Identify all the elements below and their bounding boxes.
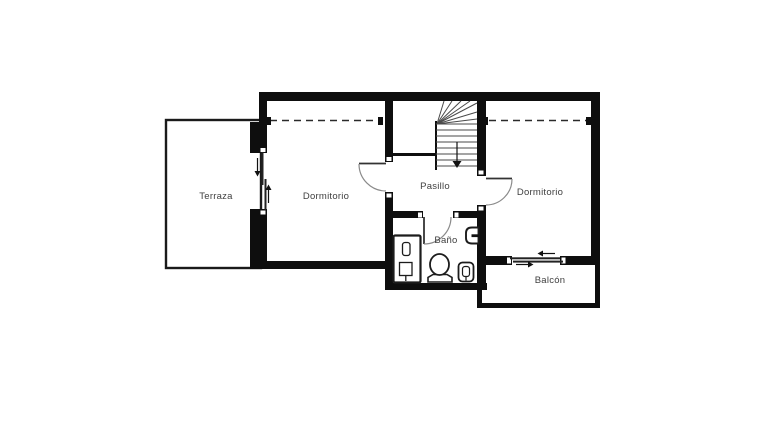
wall-balcon-left (477, 262, 482, 308)
label-bano: Baño (434, 235, 457, 246)
wall-bottom-right-b (560, 256, 600, 265)
shower-icon (394, 236, 421, 283)
label-dormitorio-left: Dormitorio (303, 191, 349, 202)
wall-bottom-left (250, 261, 393, 269)
wall-right (591, 92, 600, 265)
jamb-door-right-top (479, 171, 484, 175)
bidet-icon (459, 263, 474, 282)
doors (359, 164, 512, 245)
toilet-icon (428, 254, 452, 282)
wall-top (259, 92, 600, 101)
closet-tick-right-b (586, 117, 591, 125)
closet-tick-right-a (483, 117, 488, 125)
wall-left-pillar-bottom (250, 209, 267, 269)
floor-plan-page: Terraza Dormitorio Pasillo Dormitorio Ba… (0, 0, 768, 432)
wall-bath-bottom (385, 283, 487, 290)
closet-tick-left-a (266, 117, 271, 125)
jamb-terraza-bottom (261, 211, 266, 215)
jamb-door-left-top (387, 157, 392, 161)
jamb-door-right-bottom (479, 207, 484, 211)
wall-left-upper (259, 92, 267, 123)
label-pasillo: Pasillo (420, 181, 450, 192)
floor-plan-drawing: Terraza Dormitorio Pasillo Dormitorio Ba… (0, 0, 768, 432)
dormitorio-right-door-icon (486, 179, 512, 206)
label-terraza: Terraza (199, 191, 233, 202)
stairs-down-arrow-icon (453, 142, 462, 168)
wall-mid-left-b (385, 192, 393, 290)
stairs (436, 101, 477, 168)
label-balcon: Balcón (535, 275, 566, 286)
jamb-bath-right (455, 213, 459, 218)
jamb-door-left-bottom (387, 194, 392, 198)
jamb-bath-left (418, 213, 422, 218)
wall-mid-right-a (477, 101, 486, 176)
closet-tick-left-b (378, 117, 383, 125)
wall-balcon-bottom (477, 303, 600, 308)
label-dormitorio-right: Dormitorio (517, 187, 563, 198)
sink-icon (466, 228, 479, 244)
wall-mid-left-a (385, 101, 393, 162)
jamb-terraza-top (261, 148, 266, 152)
wall-balcon-right (595, 264, 600, 308)
stairs-winders (437, 101, 477, 124)
wall-stair-landing (390, 153, 436, 156)
balcon-sliding-door-icon (510, 251, 563, 268)
dormitorio-left-door-icon (359, 164, 386, 192)
stair-rail (435, 121, 437, 170)
closet-dashed-lines (266, 117, 591, 125)
